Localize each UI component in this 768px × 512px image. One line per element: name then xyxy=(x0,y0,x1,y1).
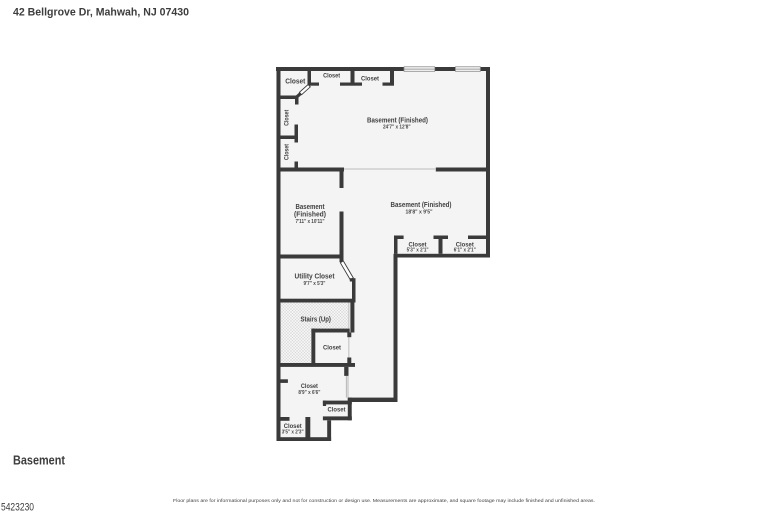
svg-text:Closet: Closet xyxy=(285,79,306,86)
svg-text:24'7" x 12'8": 24'7" x 12'8" xyxy=(383,125,411,131)
svg-text:8'9" x 6'6": 8'9" x 6'6" xyxy=(298,390,321,396)
svg-text:Closet: Closet xyxy=(323,72,341,79)
svg-text:Closet: Closet xyxy=(284,143,291,160)
svg-text:Utility Closet: Utility Closet xyxy=(295,271,335,280)
svg-text:Stairs (Up): Stairs (Up) xyxy=(300,314,331,323)
svg-text:42 Bellgrove Dr, Mahwah, NJ 07: 42 Bellgrove Dr, Mahwah, NJ 07430 xyxy=(13,7,189,19)
svg-text:Basement: Basement xyxy=(13,454,66,468)
svg-text:Closet: Closet xyxy=(361,75,380,82)
svg-text:5423230: 5423230 xyxy=(1,502,34,512)
svg-text:6'1" x 2'1": 6'1" x 2'1" xyxy=(454,248,477,254)
svg-text:9'7" x 5'3": 9'7" x 5'3" xyxy=(304,281,326,287)
svg-text:Closet: Closet xyxy=(284,109,291,126)
svg-text:Floor plans are for informatio: Floor plans are for informational purpos… xyxy=(173,498,595,503)
svg-text:Basement (Finished): Basement (Finished) xyxy=(367,116,428,125)
svg-text:Closet: Closet xyxy=(323,345,342,352)
svg-text:Closet: Closet xyxy=(328,407,347,414)
svg-text:(Finished): (Finished) xyxy=(294,209,326,218)
svg-text:Basement (Finished): Basement (Finished) xyxy=(391,200,452,209)
svg-text:7'11" x 10'11": 7'11" x 10'11" xyxy=(296,219,325,225)
svg-text:5'3" x 2'1": 5'3" x 2'1" xyxy=(407,248,430,254)
svg-text:18'8" x 9'5": 18'8" x 9'5" xyxy=(406,210,434,216)
svg-text:3'5" x 2'3": 3'5" x 2'3" xyxy=(282,429,305,435)
